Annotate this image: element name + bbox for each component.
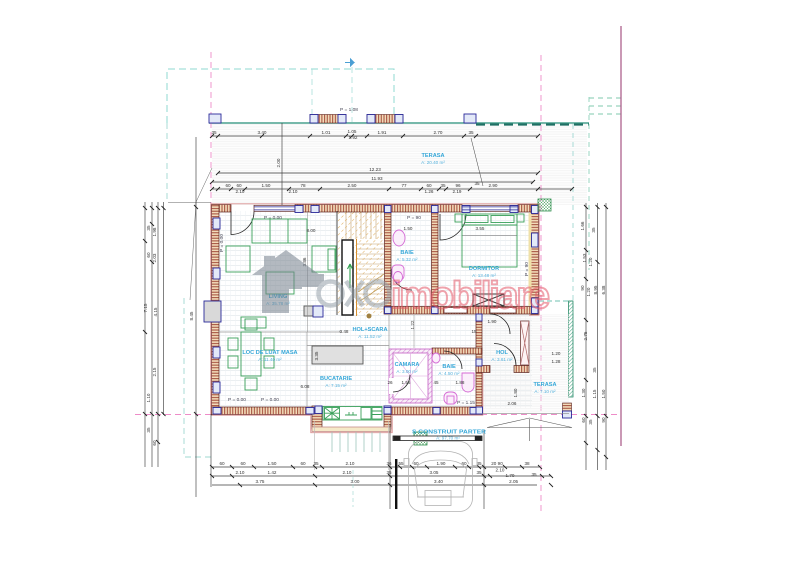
svg-text:2.10: 2.10 — [236, 470, 245, 475]
svg-text:DORMITOR: DORMITOR — [469, 266, 499, 272]
svg-text:4.15: 4.15 — [153, 307, 158, 316]
svg-text:2.10: 2.10 — [496, 468, 505, 473]
svg-text:35: 35 — [474, 181, 480, 186]
svg-text:BUCATARIE: BUCATARIE — [320, 376, 352, 382]
svg-text:A: 11.40 m²: A: 11.40 m² — [258, 357, 282, 362]
svg-text:1.92: 1.92 — [349, 135, 358, 140]
svg-text:P = 90: P = 90 — [407, 215, 421, 221]
svg-text:CAMARA: CAMARA — [395, 362, 420, 368]
svg-text:A: 11.52 m²: A: 11.52 m² — [358, 334, 382, 339]
svg-text:1.80: 1.80 — [513, 388, 518, 397]
svg-text:35: 35 — [592, 367, 597, 373]
svg-text:3.00: 3.00 — [351, 479, 360, 484]
svg-text:77: 77 — [401, 183, 407, 188]
svg-text:2.00: 2.00 — [276, 158, 281, 167]
svg-text:1.05: 1.05 — [348, 129, 357, 134]
svg-text:35: 35 — [146, 427, 151, 433]
svg-text:1.42: 1.42 — [268, 470, 277, 475]
svg-text:1.15: 1.15 — [592, 389, 597, 398]
svg-text:imobiliare: imobiliare — [391, 275, 550, 317]
svg-text:1.26: 1.26 — [425, 189, 434, 194]
svg-text:2.10: 2.10 — [236, 189, 245, 194]
svg-text:1.28: 1.28 — [552, 359, 561, 364]
svg-text:35: 35 — [588, 419, 593, 425]
svg-text:A: 4.50 m²: A: 4.50 m² — [438, 371, 460, 376]
svg-text:1.70: 1.70 — [506, 473, 515, 478]
svg-text:1.10: 1.10 — [146, 393, 151, 402]
svg-text:7.15: 7.15 — [143, 303, 148, 312]
svg-text:45: 45 — [433, 380, 439, 385]
svg-text:38: 38 — [524, 461, 530, 466]
svg-text:96: 96 — [455, 183, 461, 188]
svg-text:35: 35 — [531, 472, 537, 477]
svg-text:P = 0.00: P = 0.00 — [219, 234, 225, 252]
svg-text:1.50: 1.50 — [601, 389, 606, 398]
svg-text:A: 3.00 m²: A: 3.00 m² — [396, 369, 418, 374]
svg-text:60: 60 — [240, 461, 246, 466]
svg-text:2.90: 2.90 — [489, 183, 498, 188]
svg-text:2.10: 2.10 — [289, 189, 298, 194]
svg-text:2.15: 2.15 — [152, 367, 157, 376]
svg-text:60: 60 — [581, 417, 586, 423]
svg-text:BAIE: BAIE — [400, 250, 414, 256]
svg-text:36: 36 — [386, 461, 392, 466]
svg-text:3.35: 3.35 — [314, 351, 319, 360]
svg-text:60: 60 — [146, 252, 151, 258]
svg-text:A: 20.40 m²: A: 20.40 m² — [421, 160, 445, 165]
svg-text:2.05: 2.05 — [509, 479, 518, 484]
svg-text:A: 5.32 m²: A: 5.32 m² — [396, 257, 418, 262]
svg-text:2.10: 2.10 — [343, 470, 352, 475]
svg-text:12.23: 12.23 — [369, 167, 381, 172]
svg-text:15: 15 — [471, 329, 477, 334]
svg-text:1.90: 1.90 — [437, 461, 446, 466]
svg-text:26: 26 — [387, 380, 393, 385]
svg-text:2.75: 2.75 — [583, 331, 588, 340]
svg-text:90: 90 — [601, 417, 606, 423]
svg-text:P = 1.08: P = 1.08 — [340, 107, 358, 113]
svg-text:35: 35 — [211, 130, 217, 135]
svg-text:35: 35 — [591, 227, 596, 233]
svg-text:A: 7.10 m²: A: 7.10 m² — [534, 389, 556, 394]
svg-text:1.50: 1.50 — [404, 226, 413, 231]
svg-text:2.70: 2.70 — [434, 130, 443, 135]
svg-text:2.10: 2.10 — [346, 461, 355, 466]
svg-text:90: 90 — [580, 285, 585, 291]
svg-text:60: 60 — [219, 461, 225, 466]
svg-text:1.20: 1.20 — [586, 287, 591, 296]
svg-text:1.91: 1.91 — [378, 130, 387, 135]
svg-text:1.56: 1.56 — [402, 380, 411, 385]
svg-text:1.30: 1.30 — [581, 388, 586, 397]
svg-text:35: 35 — [476, 470, 482, 475]
svg-text:35: 35 — [468, 130, 474, 135]
svg-text:P = 90: P = 90 — [524, 262, 530, 276]
svg-text:1.50: 1.50 — [262, 183, 271, 188]
svg-text:BAIE: BAIE — [442, 364, 456, 370]
svg-text:1.50: 1.50 — [268, 461, 277, 466]
svg-text:A: 3.61 m²: A: 3.61 m² — [491, 357, 513, 362]
svg-text:11.93: 11.93 — [371, 176, 383, 181]
svg-text:1.98: 1.98 — [152, 227, 157, 236]
svg-text:1.22: 1.22 — [410, 320, 415, 329]
svg-text:60: 60 — [225, 183, 231, 188]
svg-text:8.45: 8.45 — [189, 311, 194, 320]
svg-text:TERASA: TERASA — [534, 382, 557, 388]
svg-text:78: 78 — [300, 183, 306, 188]
svg-text:A: 97.70 m²: A: 97.70 m² — [436, 436, 460, 441]
svg-text:TERASA: TERASA — [422, 153, 445, 159]
svg-text:3.55: 3.55 — [476, 226, 485, 231]
svg-text:35: 35 — [440, 183, 446, 188]
svg-text:P = 0.00: P = 0.00 — [261, 397, 279, 403]
svg-text:1.01: 1.01 — [322, 130, 331, 135]
svg-text:6.38: 6.38 — [601, 285, 606, 294]
svg-text:3.40: 3.40 — [258, 130, 267, 135]
svg-text:1.66: 1.66 — [580, 221, 585, 230]
svg-text:1.20: 1.20 — [588, 257, 593, 266]
svg-text:0.48: 0.48 — [340, 329, 349, 334]
svg-text:60: 60 — [426, 183, 432, 188]
svg-text:8.95: 8.95 — [593, 285, 598, 294]
svg-text:20 90: 20 90 — [491, 461, 503, 466]
svg-text:3.05: 3.05 — [430, 470, 439, 475]
svg-text:A: 7.15 m²: A: 7.15 m² — [325, 383, 347, 388]
svg-text:55: 55 — [398, 461, 404, 466]
svg-text:3.75: 3.75 — [256, 479, 265, 484]
svg-text:2.19: 2.19 — [453, 189, 462, 194]
svg-text:35: 35 — [313, 461, 319, 466]
svg-text:35: 35 — [146, 225, 151, 231]
svg-text:60: 60 — [152, 440, 157, 446]
svg-text:1.90: 1.90 — [488, 319, 497, 324]
svg-text:1.53: 1.53 — [582, 253, 587, 262]
svg-text:1.88: 1.88 — [456, 380, 465, 385]
svg-text:60: 60 — [236, 183, 242, 188]
svg-text:2.03: 2.03 — [152, 253, 157, 262]
svg-text:35: 35 — [386, 470, 392, 475]
svg-text:P = 0.00: P = 0.00 — [264, 215, 282, 221]
svg-text:3.40: 3.40 — [434, 479, 443, 484]
svg-text:60: 60 — [461, 461, 467, 466]
svg-text:P = 0.00: P = 0.00 — [228, 397, 246, 403]
svg-text:8.00: 8.00 — [307, 228, 316, 233]
svg-text:LOC DE LUAT MASA: LOC DE LUAT MASA — [242, 350, 297, 356]
svg-text:HOL: HOL — [496, 350, 508, 356]
svg-text:1.20: 1.20 — [552, 351, 561, 356]
svg-text:P = 1.15: P = 1.15 — [457, 400, 475, 406]
svg-text:6.08: 6.08 — [301, 384, 310, 389]
svg-text:HOL+SCARA: HOL+SCARA — [353, 327, 388, 333]
svg-text:60: 60 — [300, 461, 306, 466]
svg-text:2.50: 2.50 — [348, 183, 357, 188]
svg-text:2.06: 2.06 — [508, 401, 517, 406]
